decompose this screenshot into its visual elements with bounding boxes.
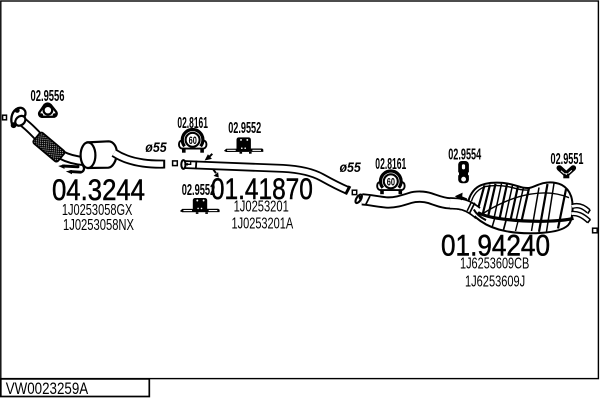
svg-text:02.9556: 02.9556 xyxy=(31,88,65,105)
svg-text:02.8161: 02.8161 xyxy=(177,115,208,132)
svg-text:ø55: ø55 xyxy=(145,140,167,155)
svg-text:02.9551: 02.9551 xyxy=(551,151,584,168)
svg-text:ø55: ø55 xyxy=(340,160,362,175)
svg-text:1J6253609J: 1J6253609J xyxy=(465,273,525,290)
svg-text:1J6253609CB: 1J6253609CB xyxy=(460,255,529,272)
svg-text:02.9552: 02.9552 xyxy=(228,120,261,137)
svg-text:60: 60 xyxy=(189,135,197,147)
svg-text:1J0253201A: 1J0253201A xyxy=(232,216,294,233)
svg-text:02.9554: 02.9554 xyxy=(448,147,481,164)
svg-text:1J0253201: 1J0253201 xyxy=(234,198,289,215)
svg-text:VW0023259A: VW0023259A xyxy=(6,379,89,398)
svg-text:02.8161: 02.8161 xyxy=(375,156,406,173)
svg-text:1J0253058NX: 1J0253058NX xyxy=(63,217,134,234)
svg-text:60: 60 xyxy=(387,176,395,188)
